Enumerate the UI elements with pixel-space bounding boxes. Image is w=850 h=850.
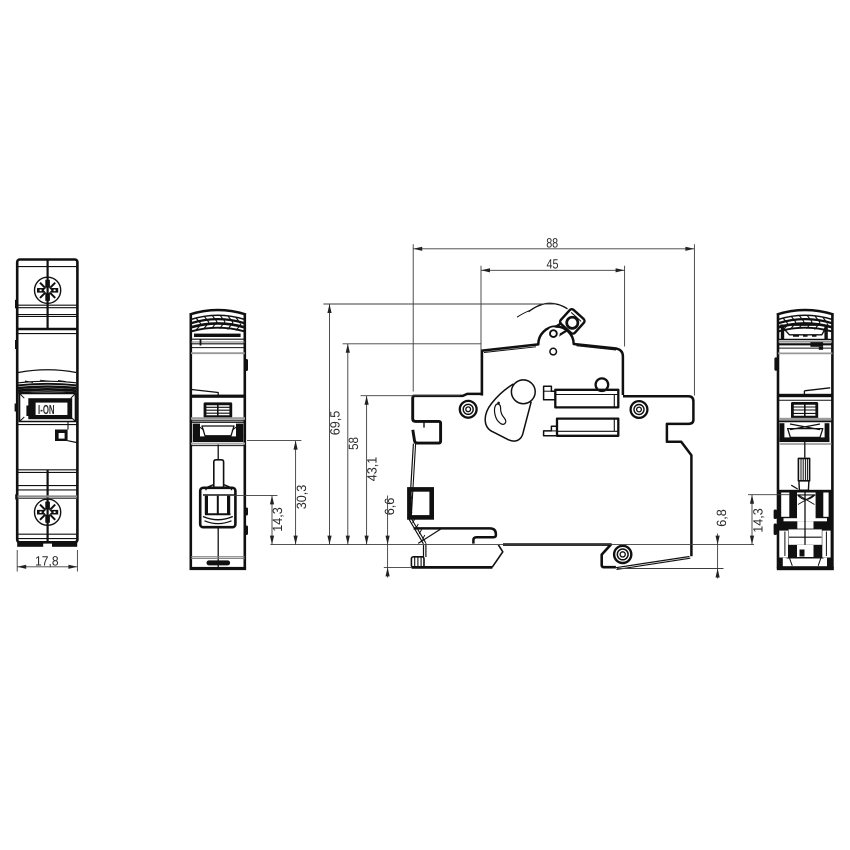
svg-text:14,3: 14,3 xyxy=(750,508,765,533)
svg-text:45: 45 xyxy=(547,257,559,272)
svg-text:69,5: 69,5 xyxy=(328,411,343,436)
svg-text:30,3: 30,3 xyxy=(294,485,309,510)
svg-text:6,8: 6,8 xyxy=(714,509,729,527)
svg-text:88: 88 xyxy=(546,235,558,250)
svg-text:6,6: 6,6 xyxy=(382,498,397,516)
svg-text:14,3: 14,3 xyxy=(270,507,285,532)
svg-text:43,1: 43,1 xyxy=(365,457,380,482)
svg-text:17,8: 17,8 xyxy=(35,553,59,568)
svg-text:I-ON: I-ON xyxy=(38,402,55,417)
svg-text:58: 58 xyxy=(346,437,361,450)
